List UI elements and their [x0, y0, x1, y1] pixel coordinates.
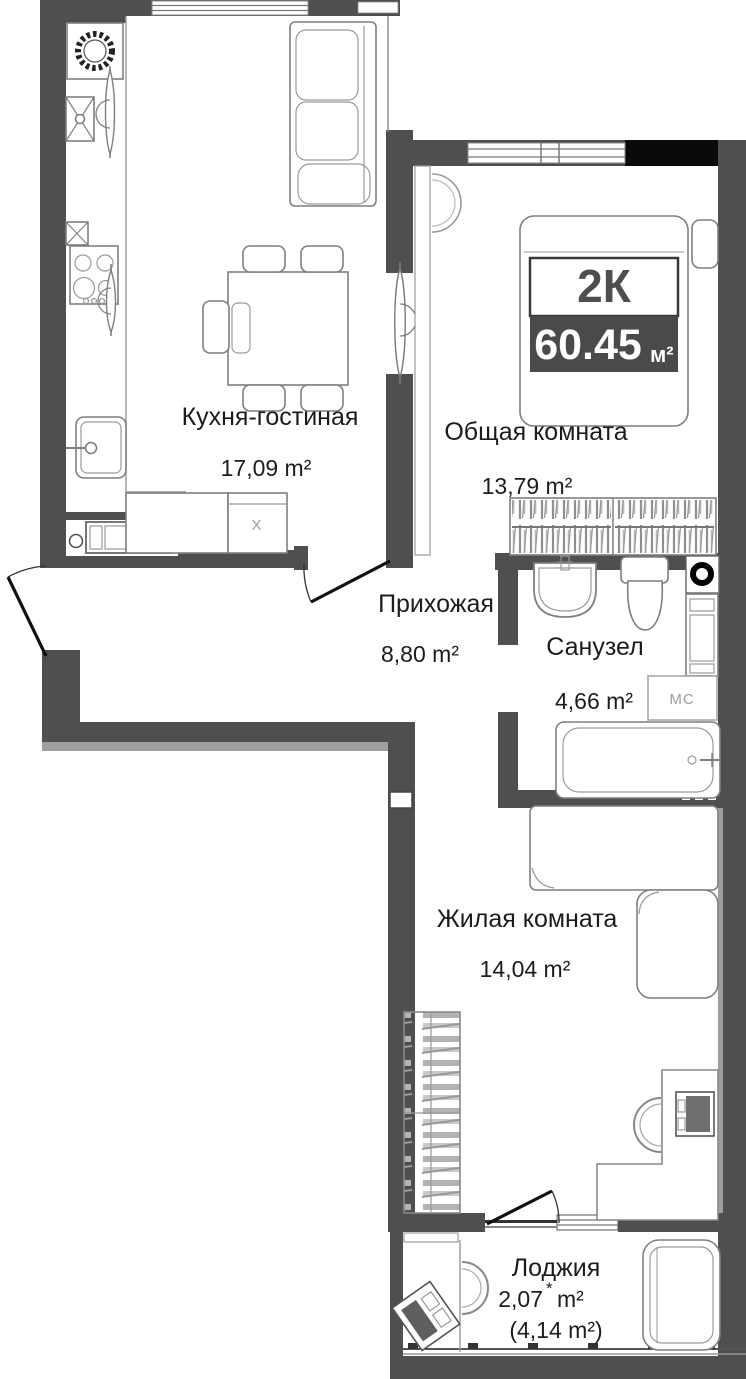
- washing-machine-label: МС: [669, 691, 694, 708]
- apartment-badge: 2К 60.45 м²: [530, 258, 678, 372]
- bedroom-window: [468, 143, 625, 163]
- loggia-door: [487, 1191, 559, 1224]
- wall-niche: [358, 2, 398, 13]
- bathroom-fixtures: МС: [534, 556, 720, 798]
- room-area-loggia-unit: m²: [557, 1286, 584, 1312]
- room-area-loggia-alt: (4,14 m²): [509, 1317, 602, 1343]
- living-room-furniture: [404, 806, 718, 1220]
- loggia-chair: [462, 1262, 488, 1314]
- sofa-bed: [530, 806, 718, 890]
- towel-dryer-cabinet: [686, 594, 718, 676]
- wall-shadow: [42, 742, 408, 751]
- room-area-loggia-star: *: [546, 1279, 553, 1298]
- room-label-kitchen: Кухня-гостиная: [182, 403, 359, 431]
- kitchen-cabinet-x: [66, 97, 94, 141]
- counter-line: [126, 16, 186, 492]
- kitchen-window: [152, 1, 308, 15]
- vent-outlet: [686, 556, 719, 593]
- room-area-loggia-value: 2,07: [498, 1286, 543, 1312]
- desk: [597, 1070, 718, 1220]
- lounger: [643, 1240, 720, 1350]
- room-label-common: Общая комната: [444, 418, 627, 446]
- loggia-sill: [404, 1233, 458, 1242]
- room-label-bathroom: Санузел: [546, 633, 643, 661]
- toilet: [621, 557, 668, 630]
- badge-area-value: 60.45: [534, 321, 642, 369]
- room-area-living: 14,04 m²: [480, 956, 571, 982]
- chaise-section: [637, 890, 718, 998]
- floor-plan: X: [0, 0, 746, 1379]
- closet-door-arc: [432, 174, 461, 232]
- room-label-hallway: Прихожая: [378, 590, 494, 618]
- vent-box-icon: [66, 222, 88, 245]
- floor-plan-page: X: [0, 0, 746, 1379]
- room-label-loggia: Лоджия: [512, 1254, 601, 1282]
- dining-table: [228, 272, 348, 385]
- nightstand: [692, 220, 718, 268]
- bedroom-wardrobe: [510, 498, 716, 555]
- sofa: [290, 22, 376, 206]
- badge-area-unit: м²: [650, 342, 674, 367]
- room-area-kitchen: 17,09 m²: [221, 455, 312, 481]
- shelf-wardrobe: [404, 1012, 460, 1213]
- desk-chair: [634, 1098, 661, 1152]
- badge-rooms-label: 2К: [577, 260, 632, 312]
- kitchen-base-cabinets: X: [126, 493, 287, 553]
- laptop: [676, 1092, 714, 1136]
- cabinet-x-label: X: [251, 517, 262, 534]
- door-jamb: [390, 792, 412, 808]
- room-area-bathroom: 4,66 m²: [555, 688, 633, 714]
- bathtub: [556, 722, 720, 798]
- washing-machine-slot: МС: [648, 676, 717, 720]
- room-label-living: Жилая комната: [437, 905, 618, 933]
- vent-shaft-block: [625, 140, 718, 166]
- room-area-hallway: 8,80 m²: [381, 641, 459, 667]
- room-area-common: 13,79 m²: [482, 473, 573, 499]
- kitchen-sink: [66, 417, 126, 478]
- bathroom-sink: [534, 556, 596, 617]
- entrance-door: [8, 566, 46, 656]
- cabinet-pivot-door: [96, 66, 115, 158]
- closet-partition: [415, 166, 430, 555]
- washing-machine: [67, 23, 123, 79]
